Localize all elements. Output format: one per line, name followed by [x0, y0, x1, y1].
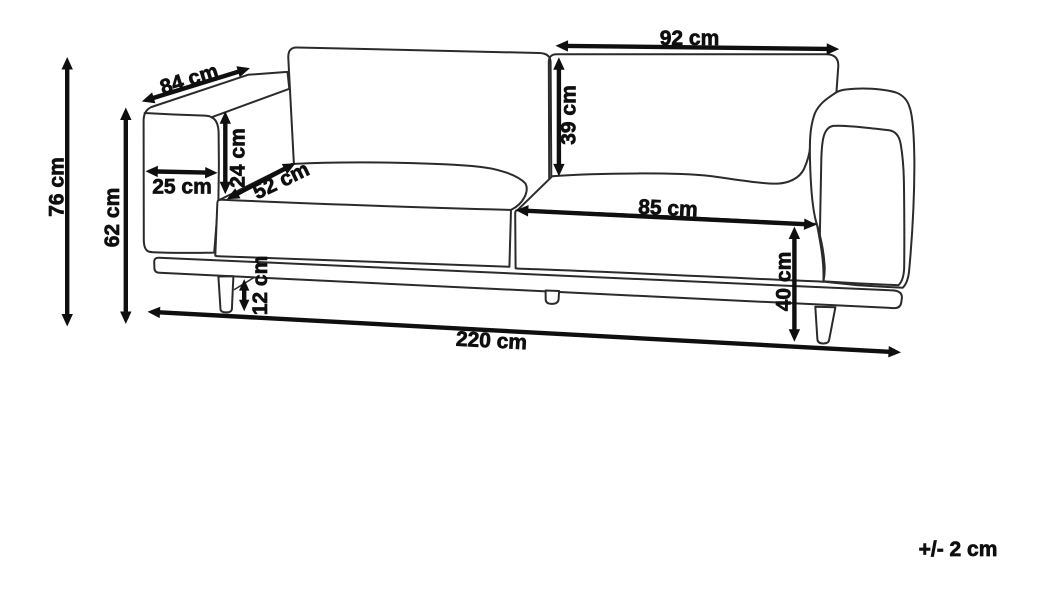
svg-text:40 cm: 40 cm: [773, 252, 796, 312]
svg-text:39 cm: 39 cm: [558, 85, 581, 145]
svg-text:220 cm: 220 cm: [455, 328, 527, 355]
svg-text:24 cm: 24 cm: [227, 128, 250, 188]
svg-text:12 cm: 12 cm: [249, 256, 272, 316]
svg-text:85 cm: 85 cm: [638, 196, 699, 222]
svg-text:25 cm: 25 cm: [152, 176, 212, 199]
svg-text:76 cm: 76 cm: [46, 157, 69, 217]
svg-text:62 cm: 62 cm: [101, 188, 124, 248]
svg-text:+/- 2 cm: +/- 2 cm: [919, 538, 998, 561]
svg-text:92 cm: 92 cm: [660, 27, 720, 50]
